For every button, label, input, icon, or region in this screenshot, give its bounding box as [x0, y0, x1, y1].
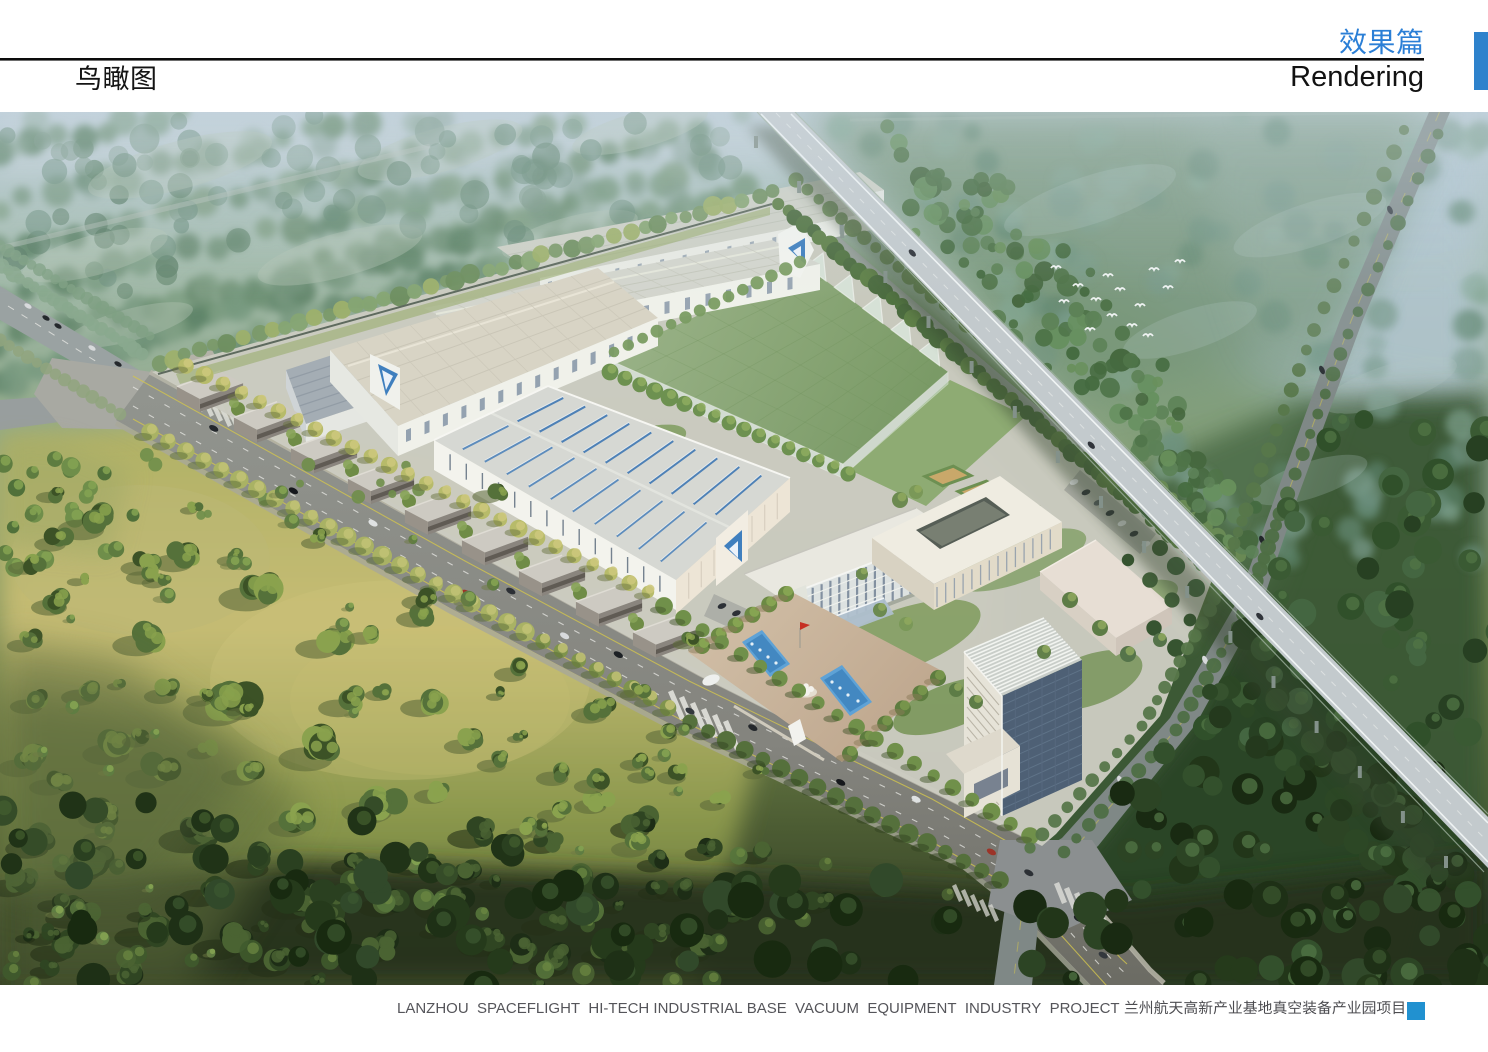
svg-text:Rendering: Rendering: [1290, 61, 1424, 93]
svg-text:LANZHOU SPACEFLIGHT HI-TECH: LANZHOU SPACEFLIGHT HI-TECH INDUSTRIAL B…: [397, 1000, 1120, 1017]
